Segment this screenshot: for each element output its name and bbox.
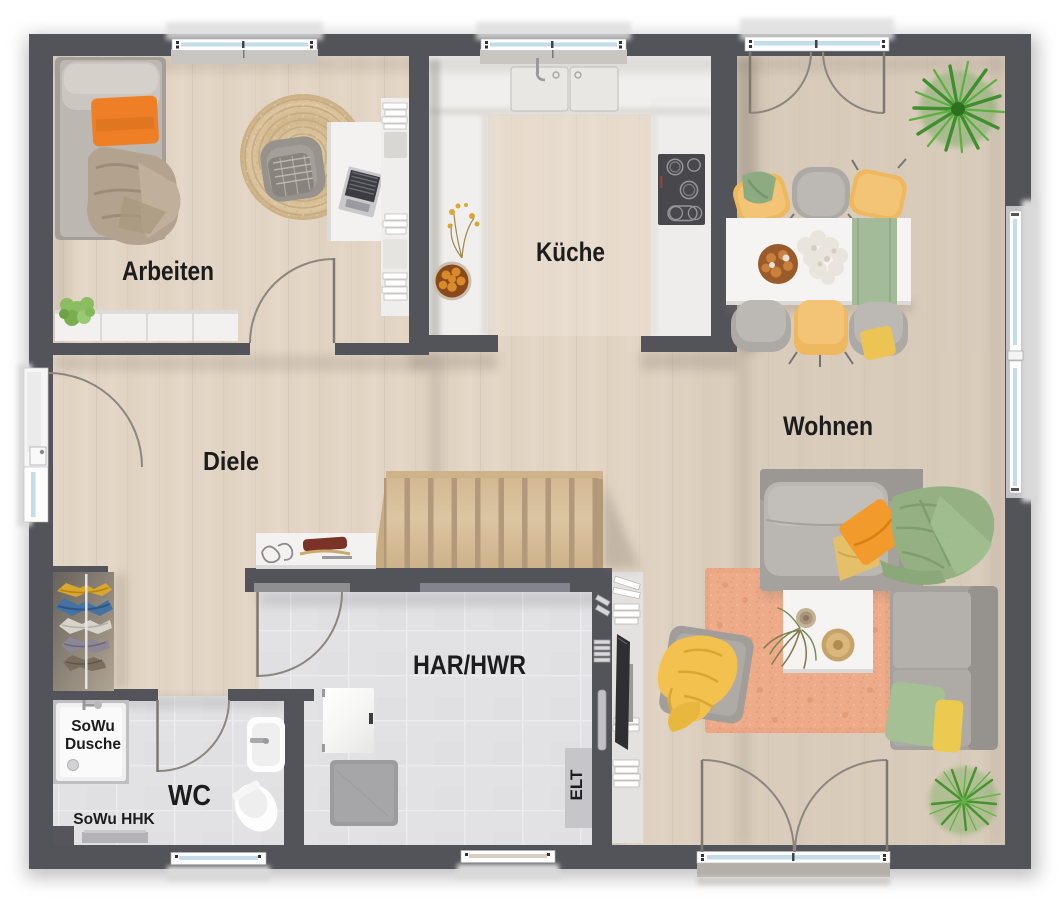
svg-text:Arbeiten: Arbeiten xyxy=(122,256,214,286)
svg-text:Diele: Diele xyxy=(203,446,259,476)
svg-text:WC: WC xyxy=(168,780,211,812)
svg-text:Dusche: Dusche xyxy=(65,736,121,753)
svg-text:HAR/HWR: HAR/HWR xyxy=(413,650,526,680)
svg-text:SoWu HHK: SoWu HHK xyxy=(73,811,155,828)
svg-text:ELT: ELT xyxy=(567,769,586,800)
svg-text:SoWu: SoWu xyxy=(71,718,115,735)
svg-text:Wohnen: Wohnen xyxy=(783,411,873,441)
svg-text:Küche: Küche xyxy=(536,237,605,267)
